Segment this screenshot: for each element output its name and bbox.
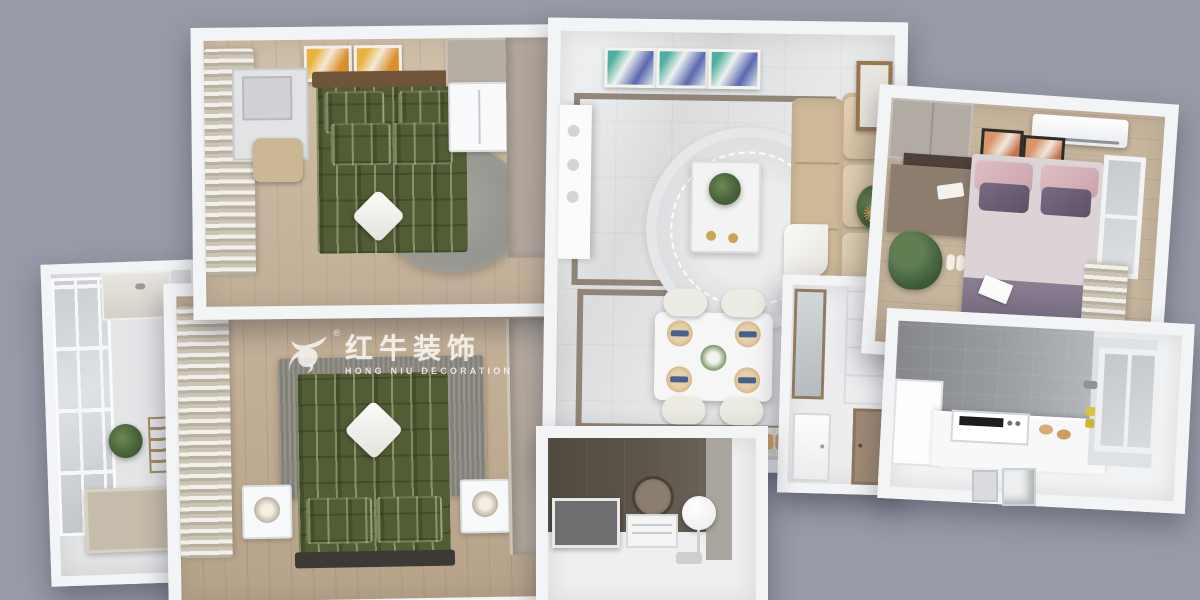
table-lamp	[254, 497, 280, 523]
standing-mirror	[682, 496, 716, 530]
nightstand	[460, 479, 511, 534]
potted-plant	[108, 423, 143, 458]
purple-pillow	[1040, 186, 1092, 217]
nightstand	[242, 484, 293, 539]
stool	[676, 552, 702, 564]
second-bedroom	[190, 24, 581, 320]
bed	[316, 78, 468, 254]
exterior-duct	[972, 470, 998, 502]
round-vanity-mirror	[632, 476, 674, 518]
pillow	[392, 122, 452, 165]
place-setting	[734, 367, 760, 393]
brand-name-english: HONG NIU DECORATION	[345, 367, 513, 376]
sink-area	[1087, 337, 1158, 468]
vanity-cabinet	[626, 514, 678, 548]
dining-table	[654, 312, 773, 402]
master-bed	[296, 372, 451, 563]
kitchen	[877, 308, 1195, 514]
laundry-counter	[101, 270, 173, 320]
dining-chair	[720, 397, 764, 426]
overhead-cabinet	[888, 98, 974, 164]
place-setting	[667, 320, 693, 346]
faucet-icon	[1083, 380, 1097, 389]
pillow	[376, 496, 443, 543]
bathroom	[536, 426, 768, 600]
window	[1096, 155, 1146, 280]
decor-dishes	[706, 231, 716, 241]
faucet-icon	[135, 283, 145, 289]
brand-name-chinese: 红牛装饰	[345, 335, 513, 363]
brand-watermark: ® 红牛装饰 HONG NIU DECORATION	[286, 324, 526, 386]
place-setting	[666, 366, 692, 392]
oven	[950, 410, 1030, 446]
centerpiece-flowers	[700, 345, 726, 371]
bull-logo-icon: ®	[286, 330, 336, 380]
printer	[242, 76, 292, 121]
dining-chair	[662, 396, 706, 425]
interior-door	[791, 413, 831, 482]
headboard	[295, 550, 455, 569]
purple-pillow	[978, 182, 1030, 213]
pillow	[330, 123, 390, 166]
wall-art	[656, 48, 709, 89]
table-lamp	[472, 491, 498, 517]
dining-chair	[663, 288, 707, 317]
place-setting	[735, 321, 761, 347]
mirror-stand	[697, 530, 700, 552]
pillow	[306, 497, 373, 544]
open-book	[937, 182, 965, 199]
overhead-cabinet	[446, 38, 508, 87]
brand-text: 红牛装饰 HONG NIU DECORATION	[345, 335, 513, 376]
exterior-duct	[1002, 468, 1036, 506]
tv-console	[558, 105, 592, 259]
table-plant	[709, 173, 741, 205]
full-length-mirror	[792, 289, 827, 400]
condiment-bottles	[1086, 407, 1095, 416]
kitchen-window	[1094, 347, 1161, 454]
desk-chair	[253, 138, 303, 183]
monstera-plant	[887, 230, 945, 292]
slippers	[946, 254, 955, 271]
registered-mark: ®	[333, 328, 340, 338]
oven-knobs	[1007, 421, 1012, 426]
wall-art	[604, 47, 657, 88]
curtains	[177, 306, 233, 559]
oven-display	[959, 416, 1003, 427]
floorplan-render: ✺	[0, 0, 1200, 600]
dining-chair	[721, 289, 765, 318]
white-throw-blanket	[784, 224, 829, 277]
coffee-table	[690, 161, 761, 254]
bathtub	[552, 498, 620, 548]
white-cabinet	[448, 82, 509, 153]
wall-art	[708, 49, 761, 90]
